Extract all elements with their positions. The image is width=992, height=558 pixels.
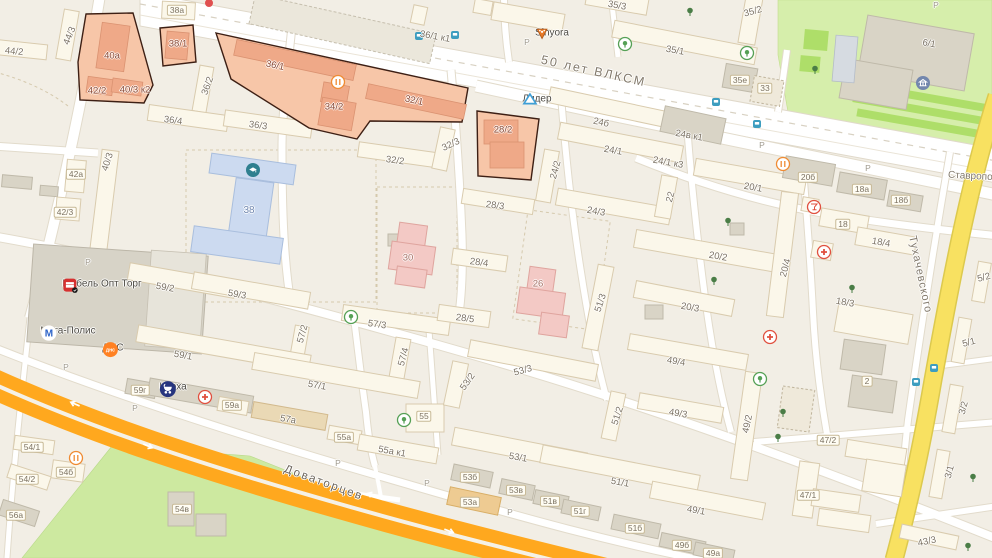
bus-stop-icon[interactable]: [930, 364, 938, 372]
building: [55, 197, 81, 221]
school-icon[interactable]: [246, 163, 260, 177]
building: [168, 492, 194, 526]
building: [645, 305, 663, 319]
selected-building: [484, 120, 518, 144]
building: [406, 404, 444, 432]
bus-stop-icon[interactable]: [451, 31, 459, 39]
restaurant-icon[interactable]: [777, 158, 790, 171]
map-canvas[interactable]: 50 лет ВЛКСМ Доваторцев Тухачевского Ста…: [0, 0, 992, 558]
building: [228, 178, 274, 241]
building: [539, 312, 570, 338]
selected-building: [165, 31, 189, 60]
building: [196, 514, 226, 536]
bus-stop-icon[interactable]: [753, 120, 761, 128]
poi-megapolis[interactable]: М Мега-Полис: [40, 325, 95, 337]
building: [395, 266, 427, 288]
building: [473, 0, 493, 15]
map-graphics: [0, 0, 992, 558]
poi-lider[interactable]: Лидер: [522, 93, 551, 105]
building: [162, 1, 196, 20]
building: [2, 175, 33, 190]
poi-kroha[interactable]: Кроха: [159, 381, 186, 393]
poi-mebel[interactable]: Мебель Опт Торг: [62, 278, 141, 290]
svg-text:М: М: [45, 329, 53, 340]
building: [862, 459, 907, 497]
building: [65, 159, 87, 193]
eco-icon[interactable]: [619, 38, 632, 51]
medical-icon[interactable]: [818, 246, 831, 259]
building: [410, 5, 427, 26]
selected-building: [86, 76, 114, 95]
eco-icon[interactable]: [398, 414, 411, 427]
poi-sinyora[interactable]: Sinyora: [535, 27, 569, 39]
building: [848, 375, 897, 413]
public-building-icon[interactable]: [916, 76, 930, 90]
building: [40, 185, 59, 197]
poi-dns[interactable]: днс ДНС: [102, 342, 123, 354]
svg-text:днс: днс: [106, 348, 115, 354]
selected-building: [96, 22, 130, 71]
pharmacy-icon[interactable]: [764, 331, 777, 344]
building: [840, 339, 886, 375]
bus-stop-icon[interactable]: [912, 378, 920, 386]
building: [750, 76, 784, 107]
eco-icon[interactable]: [754, 373, 767, 386]
selected-building: [318, 97, 356, 130]
eco-icon[interactable]: [345, 311, 358, 324]
bus-stop-icon[interactable]: [712, 98, 720, 106]
building: [832, 35, 858, 83]
selected-building: [490, 142, 524, 168]
pharmacy-icon[interactable]: [199, 391, 212, 404]
restaurant-icon[interactable]: [70, 452, 83, 465]
restaurant-icon[interactable]: [332, 76, 345, 89]
bar-icon[interactable]: [808, 201, 821, 214]
eco-icon[interactable]: [741, 47, 754, 60]
building: [730, 223, 744, 235]
bus-stop-icon[interactable]: [415, 32, 423, 40]
